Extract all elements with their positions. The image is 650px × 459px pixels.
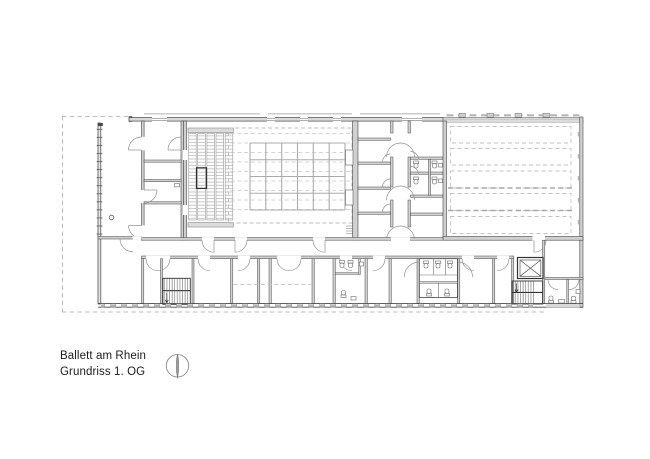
staircase-right (512, 281, 543, 304)
south-facade (98, 304, 583, 308)
south-window-piers (101, 304, 533, 307)
foyer-column (109, 215, 114, 220)
backstage-door-swings (383, 152, 419, 213)
wc-rooms-right (548, 280, 580, 304)
elevator (518, 258, 544, 279)
stage-dashed-lines (230, 133, 352, 219)
south-corridor (98, 236, 546, 271)
west-facade-glazing (97, 123, 103, 304)
door-swings-west-rooms (129, 137, 182, 238)
north-facade (129, 114, 443, 122)
auditorium-seating (183, 121, 233, 240)
foyer (109, 215, 114, 220)
drawing-subtitle: Grundriss 1. OG (60, 365, 146, 381)
wc-stall-block (404, 259, 472, 298)
north-arrow-icon (164, 352, 192, 382)
title-block: Ballett am Rhein Grundriss 1. OG (60, 349, 146, 380)
drawing-title: Ballett am Rhein (60, 349, 146, 365)
stage (229, 128, 353, 234)
wc-cluster-middle (335, 259, 363, 300)
staircase-left (163, 278, 191, 304)
sink-fixture (175, 184, 180, 187)
hall-skylight-stripes (451, 127, 572, 234)
stage-side-steps (346, 226, 353, 234)
office-rooms-west (129, 121, 184, 240)
south-wing (142, 240, 584, 304)
architectural-drawing-sheet: Ballett am Rhein Grundriss 1. OG (0, 0, 650, 459)
backstage-rooms (358, 121, 443, 240)
seat-rows (189, 134, 233, 221)
floor-plan (0, 0, 650, 459)
